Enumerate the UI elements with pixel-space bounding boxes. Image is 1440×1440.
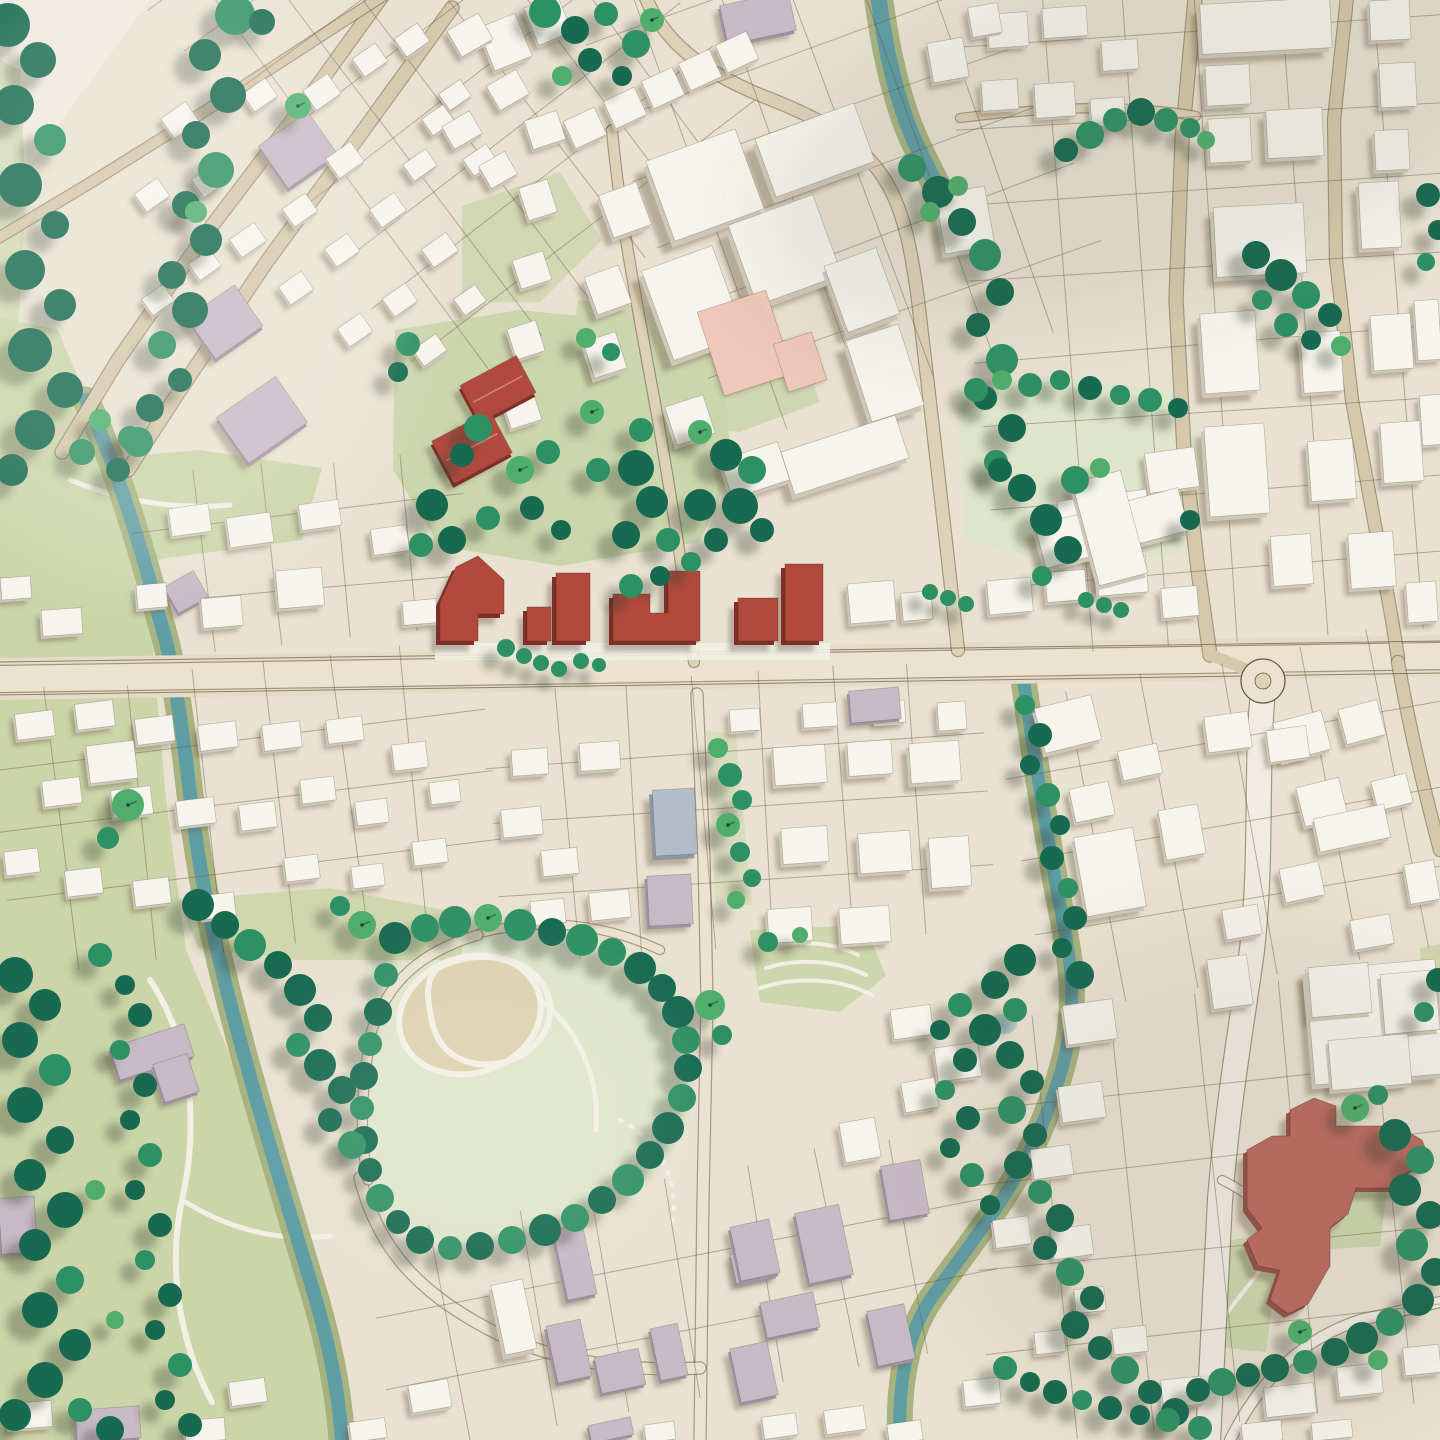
building — [174, 797, 217, 830]
building — [906, 740, 962, 787]
tree-shadow — [587, 356, 605, 374]
tree — [97, 827, 119, 849]
tree — [958, 596, 974, 612]
tree-pin-head — [650, 18, 654, 22]
tree — [758, 932, 778, 952]
building-roof — [4, 848, 41, 876]
building — [427, 779, 462, 807]
tree — [182, 889, 214, 921]
tree-pin-head — [726, 823, 730, 827]
tree — [612, 66, 632, 86]
building — [260, 721, 303, 754]
tree — [935, 1080, 955, 1100]
tree — [684, 489, 716, 521]
tree — [1032, 566, 1052, 586]
building — [837, 1117, 882, 1165]
building-roof — [135, 715, 176, 745]
tree — [551, 520, 571, 540]
tree — [1004, 944, 1036, 976]
tree — [1018, 373, 1042, 397]
tree — [46, 1126, 74, 1154]
tree-pin-head — [486, 916, 490, 920]
tree-pin-head — [518, 468, 522, 472]
tree — [792, 927, 808, 943]
tree — [704, 528, 728, 552]
building-roof — [928, 836, 971, 889]
building-roof — [75, 700, 116, 730]
building — [1305, 439, 1357, 505]
building — [227, 1378, 268, 1409]
tree — [602, 343, 620, 361]
tree — [674, 1054, 702, 1082]
building-roof — [176, 797, 217, 827]
building-roof — [847, 740, 893, 777]
building-roof — [1414, 299, 1440, 361]
building-roof — [738, 598, 778, 641]
tree — [135, 1250, 155, 1270]
tree — [1078, 592, 1094, 608]
tree — [1096, 597, 1112, 613]
building — [134, 583, 168, 612]
tree — [656, 528, 680, 552]
tree — [68, 1398, 92, 1422]
building-roof — [1380, 421, 1424, 484]
tree — [1078, 376, 1102, 400]
tree — [738, 456, 766, 484]
tree — [718, 763, 742, 787]
building-roof — [1404, 860, 1440, 905]
tree — [379, 922, 411, 954]
tree — [594, 2, 618, 26]
tree — [672, 1026, 700, 1054]
building — [499, 806, 544, 841]
roundabout-island — [1255, 673, 1271, 689]
tree — [1292, 281, 1320, 309]
tree — [578, 48, 602, 72]
tree — [168, 1353, 192, 1377]
tree — [476, 506, 500, 530]
tree-pin-head — [708, 1003, 712, 1007]
tree — [552, 66, 572, 86]
tree — [1318, 303, 1342, 327]
tree — [1331, 336, 1351, 356]
tree-pin-head — [126, 803, 130, 807]
building — [273, 567, 325, 612]
tree-pin-head — [698, 430, 702, 434]
building-roof — [781, 825, 829, 864]
building-roof — [326, 716, 365, 744]
tree — [1020, 755, 1040, 775]
building-roof — [824, 1405, 867, 1434]
building — [1368, 313, 1414, 374]
building-roof — [1370, 313, 1414, 371]
tree — [416, 489, 448, 521]
building-roof — [937, 701, 967, 731]
building — [73, 700, 116, 733]
building-roof — [239, 801, 278, 831]
building — [1417, 394, 1440, 448]
building — [727, 708, 761, 735]
tree — [981, 971, 1009, 999]
tree — [497, 639, 515, 657]
building — [1156, 804, 1207, 864]
building-roof — [1266, 725, 1310, 762]
tree — [1061, 466, 1089, 494]
tree — [22, 1292, 58, 1328]
tree — [264, 951, 292, 979]
building-roof — [652, 788, 697, 856]
tree — [155, 1390, 175, 1410]
tree — [330, 896, 350, 916]
tree — [681, 552, 701, 572]
tree — [743, 869, 761, 887]
building — [2, 848, 41, 879]
building-roof — [589, 889, 632, 921]
building — [1142, 447, 1200, 497]
building-roof — [762, 1413, 799, 1440]
building — [844, 740, 893, 780]
tree — [133, 1073, 157, 1097]
building — [1201, 711, 1252, 756]
tree — [636, 486, 668, 518]
building — [133, 715, 176, 748]
building — [63, 867, 104, 900]
building-roof — [284, 854, 321, 882]
building — [199, 595, 244, 631]
tree — [56, 1266, 84, 1294]
building-roof — [15, 710, 56, 740]
building — [760, 1413, 799, 1440]
building-roof — [541, 847, 580, 877]
building — [353, 798, 390, 828]
tree-shadow — [536, 674, 552, 690]
tree — [1028, 723, 1052, 747]
building-roof — [42, 777, 83, 807]
building-roof — [1270, 534, 1313, 587]
tree — [1180, 510, 1200, 530]
building — [577, 741, 621, 775]
tree — [1015, 695, 1035, 715]
tree — [1052, 938, 1072, 958]
tree — [110, 1040, 130, 1060]
building — [935, 701, 967, 733]
tree — [7, 1087, 43, 1123]
building-roof — [839, 1117, 881, 1163]
tree — [1050, 815, 1070, 835]
tree — [576, 328, 596, 348]
building — [390, 741, 429, 774]
tree — [120, 1110, 140, 1130]
tree-shadow — [1098, 615, 1114, 631]
tree — [1036, 783, 1060, 807]
building-roof — [839, 905, 891, 944]
tree — [409, 533, 433, 557]
tree — [992, 370, 1012, 390]
tree — [712, 1025, 732, 1045]
tree — [115, 975, 135, 995]
building — [1345, 531, 1396, 592]
tree — [1008, 474, 1036, 502]
tree — [29, 989, 61, 1021]
tree-shadow — [1063, 605, 1079, 621]
tree-shadow — [518, 668, 534, 684]
tree — [178, 1413, 202, 1437]
tree — [0, 1399, 31, 1431]
tree — [1050, 370, 1070, 390]
tree — [538, 918, 566, 946]
tree — [234, 929, 266, 961]
building-roof — [1419, 394, 1440, 445]
light-tint — [280, 960, 680, 1280]
building-roof — [412, 838, 449, 866]
tree — [998, 414, 1026, 442]
tree — [1090, 458, 1110, 478]
tree-shadow — [1081, 610, 1097, 626]
building-roof — [1200, 310, 1260, 394]
building-roof — [402, 599, 438, 626]
tree — [1113, 602, 1129, 618]
tree — [1301, 330, 1321, 350]
tree — [438, 526, 466, 554]
tree — [592, 658, 606, 672]
tree — [520, 496, 544, 520]
building-roof — [847, 580, 896, 624]
tree — [551, 661, 567, 677]
building — [1377, 421, 1424, 487]
tree — [19, 1229, 51, 1261]
building — [131, 877, 172, 910]
tree — [411, 914, 439, 942]
architectural-model-photo — [0, 0, 1440, 1440]
tree-shadow — [577, 671, 591, 685]
tree — [1058, 878, 1078, 898]
building — [237, 801, 278, 834]
tree-shadow — [482, 652, 500, 670]
tree — [1252, 290, 1272, 310]
tree — [964, 378, 988, 402]
building-roof — [647, 874, 694, 926]
building — [649, 788, 698, 860]
building — [400, 599, 438, 628]
tree — [464, 414, 492, 442]
building-roof — [849, 687, 902, 723]
tree — [1138, 388, 1162, 412]
tree — [536, 440, 560, 464]
tree — [722, 488, 758, 524]
building-roof — [729, 708, 760, 732]
tree-shadow — [925, 603, 941, 619]
tree — [1020, 1372, 1040, 1392]
building-roof — [802, 702, 838, 728]
tree — [730, 842, 750, 862]
building-roof — [579, 741, 621, 772]
tree — [1110, 385, 1130, 405]
building-roof — [355, 798, 390, 826]
tree — [618, 450, 654, 486]
building-roof — [0, 576, 31, 600]
tree — [533, 655, 549, 671]
tree — [59, 1329, 91, 1361]
tree — [158, 1283, 182, 1307]
tree — [27, 1362, 63, 1398]
tree-shadow — [777, 940, 793, 956]
tree — [612, 521, 640, 549]
building-roof — [229, 1378, 268, 1407]
tree — [1040, 846, 1064, 870]
tree — [284, 974, 316, 1006]
building-roof — [65, 867, 104, 897]
tree — [1168, 398, 1188, 418]
building-roof — [1204, 711, 1253, 753]
building-roof — [136, 583, 168, 610]
tree — [662, 996, 694, 1028]
building — [1159, 585, 1200, 621]
building — [778, 825, 829, 867]
tree — [573, 653, 589, 669]
tree — [750, 518, 774, 542]
tree — [145, 1320, 165, 1340]
building — [1200, 423, 1270, 521]
building — [587, 889, 632, 924]
building-roof — [501, 806, 544, 838]
building — [282, 854, 321, 885]
tree — [211, 911, 239, 939]
tree — [1030, 504, 1062, 536]
building — [40, 777, 83, 810]
tree — [128, 1003, 152, 1027]
building — [84, 740, 139, 787]
building — [1268, 534, 1314, 590]
building-roof — [275, 567, 324, 609]
building-roof — [785, 564, 823, 641]
building-roof — [429, 779, 461, 804]
building — [349, 863, 386, 891]
tree-shadow — [943, 609, 959, 625]
tree — [1274, 313, 1298, 337]
building — [196, 721, 239, 754]
building-roof — [1348, 531, 1397, 589]
tree — [948, 993, 972, 1017]
tree — [650, 566, 670, 586]
tree-shadow — [501, 661, 517, 677]
tree — [88, 943, 112, 967]
tree — [566, 924, 598, 956]
tree-shadow — [1402, 266, 1420, 284]
tree — [930, 1020, 950, 1040]
building-roof — [201, 595, 243, 628]
building-roof — [262, 721, 303, 751]
building-roof — [858, 830, 913, 874]
building-roof — [1158, 804, 1206, 860]
building — [837, 905, 892, 947]
tree-pin-head — [360, 923, 364, 927]
building-roof — [198, 721, 239, 751]
tree — [47, 1192, 83, 1228]
tree — [732, 790, 752, 810]
building — [845, 580, 897, 627]
tree — [619, 574, 643, 598]
city-model-map — [0, 0, 1440, 1440]
building-roof — [1204, 423, 1270, 517]
tree — [727, 891, 745, 909]
tree — [2, 1022, 38, 1058]
tree — [561, 16, 589, 44]
tree-shadow — [907, 597, 923, 613]
building-roof — [773, 744, 828, 786]
building-roof — [511, 748, 549, 776]
tree — [85, 1180, 105, 1200]
building-roof — [133, 877, 172, 907]
building-roof — [1307, 439, 1356, 502]
tree — [586, 458, 610, 482]
tree — [125, 1180, 145, 1200]
building — [1404, 581, 1439, 626]
building — [410, 838, 449, 869]
tree — [516, 648, 532, 664]
building-roof — [300, 776, 337, 804]
tree-pin-head — [590, 410, 594, 414]
building — [770, 744, 827, 789]
building-roof — [527, 607, 551, 641]
tree — [450, 443, 474, 467]
tree — [922, 584, 938, 600]
building — [855, 830, 912, 877]
tree — [14, 1159, 46, 1191]
building — [925, 836, 972, 892]
building-roof — [86, 740, 138, 784]
tree — [138, 1143, 162, 1167]
building — [324, 716, 365, 747]
tree — [1054, 536, 1082, 564]
building — [800, 702, 838, 731]
building — [1196, 310, 1260, 398]
tree — [106, 1311, 124, 1329]
tree — [148, 1213, 172, 1237]
building-roof — [1161, 585, 1199, 618]
tree — [1417, 253, 1435, 271]
tree-shadow — [91, 1324, 109, 1342]
tree — [1063, 906, 1087, 930]
tree — [993, 1356, 1017, 1380]
tree — [439, 906, 471, 938]
tree — [629, 418, 653, 442]
building-roof — [351, 863, 385, 889]
building — [1412, 299, 1440, 363]
building — [539, 847, 580, 879]
tree — [940, 590, 956, 606]
building-roof — [1144, 447, 1199, 494]
building — [846, 687, 901, 726]
building — [13, 710, 56, 743]
building-roof — [392, 741, 429, 771]
tree — [988, 458, 1012, 482]
building-roof — [909, 740, 962, 783]
tree — [710, 439, 742, 471]
building-roof — [41, 608, 83, 637]
building — [1264, 725, 1310, 765]
tree — [598, 938, 626, 966]
building-roof — [1406, 581, 1439, 623]
building — [644, 874, 693, 929]
tree-shadow — [712, 904, 730, 922]
building-roof — [556, 573, 590, 641]
tree — [39, 1054, 71, 1086]
building — [0, 576, 32, 603]
tree — [622, 30, 650, 58]
building — [509, 748, 549, 779]
tree — [708, 738, 728, 758]
building — [298, 776, 337, 807]
